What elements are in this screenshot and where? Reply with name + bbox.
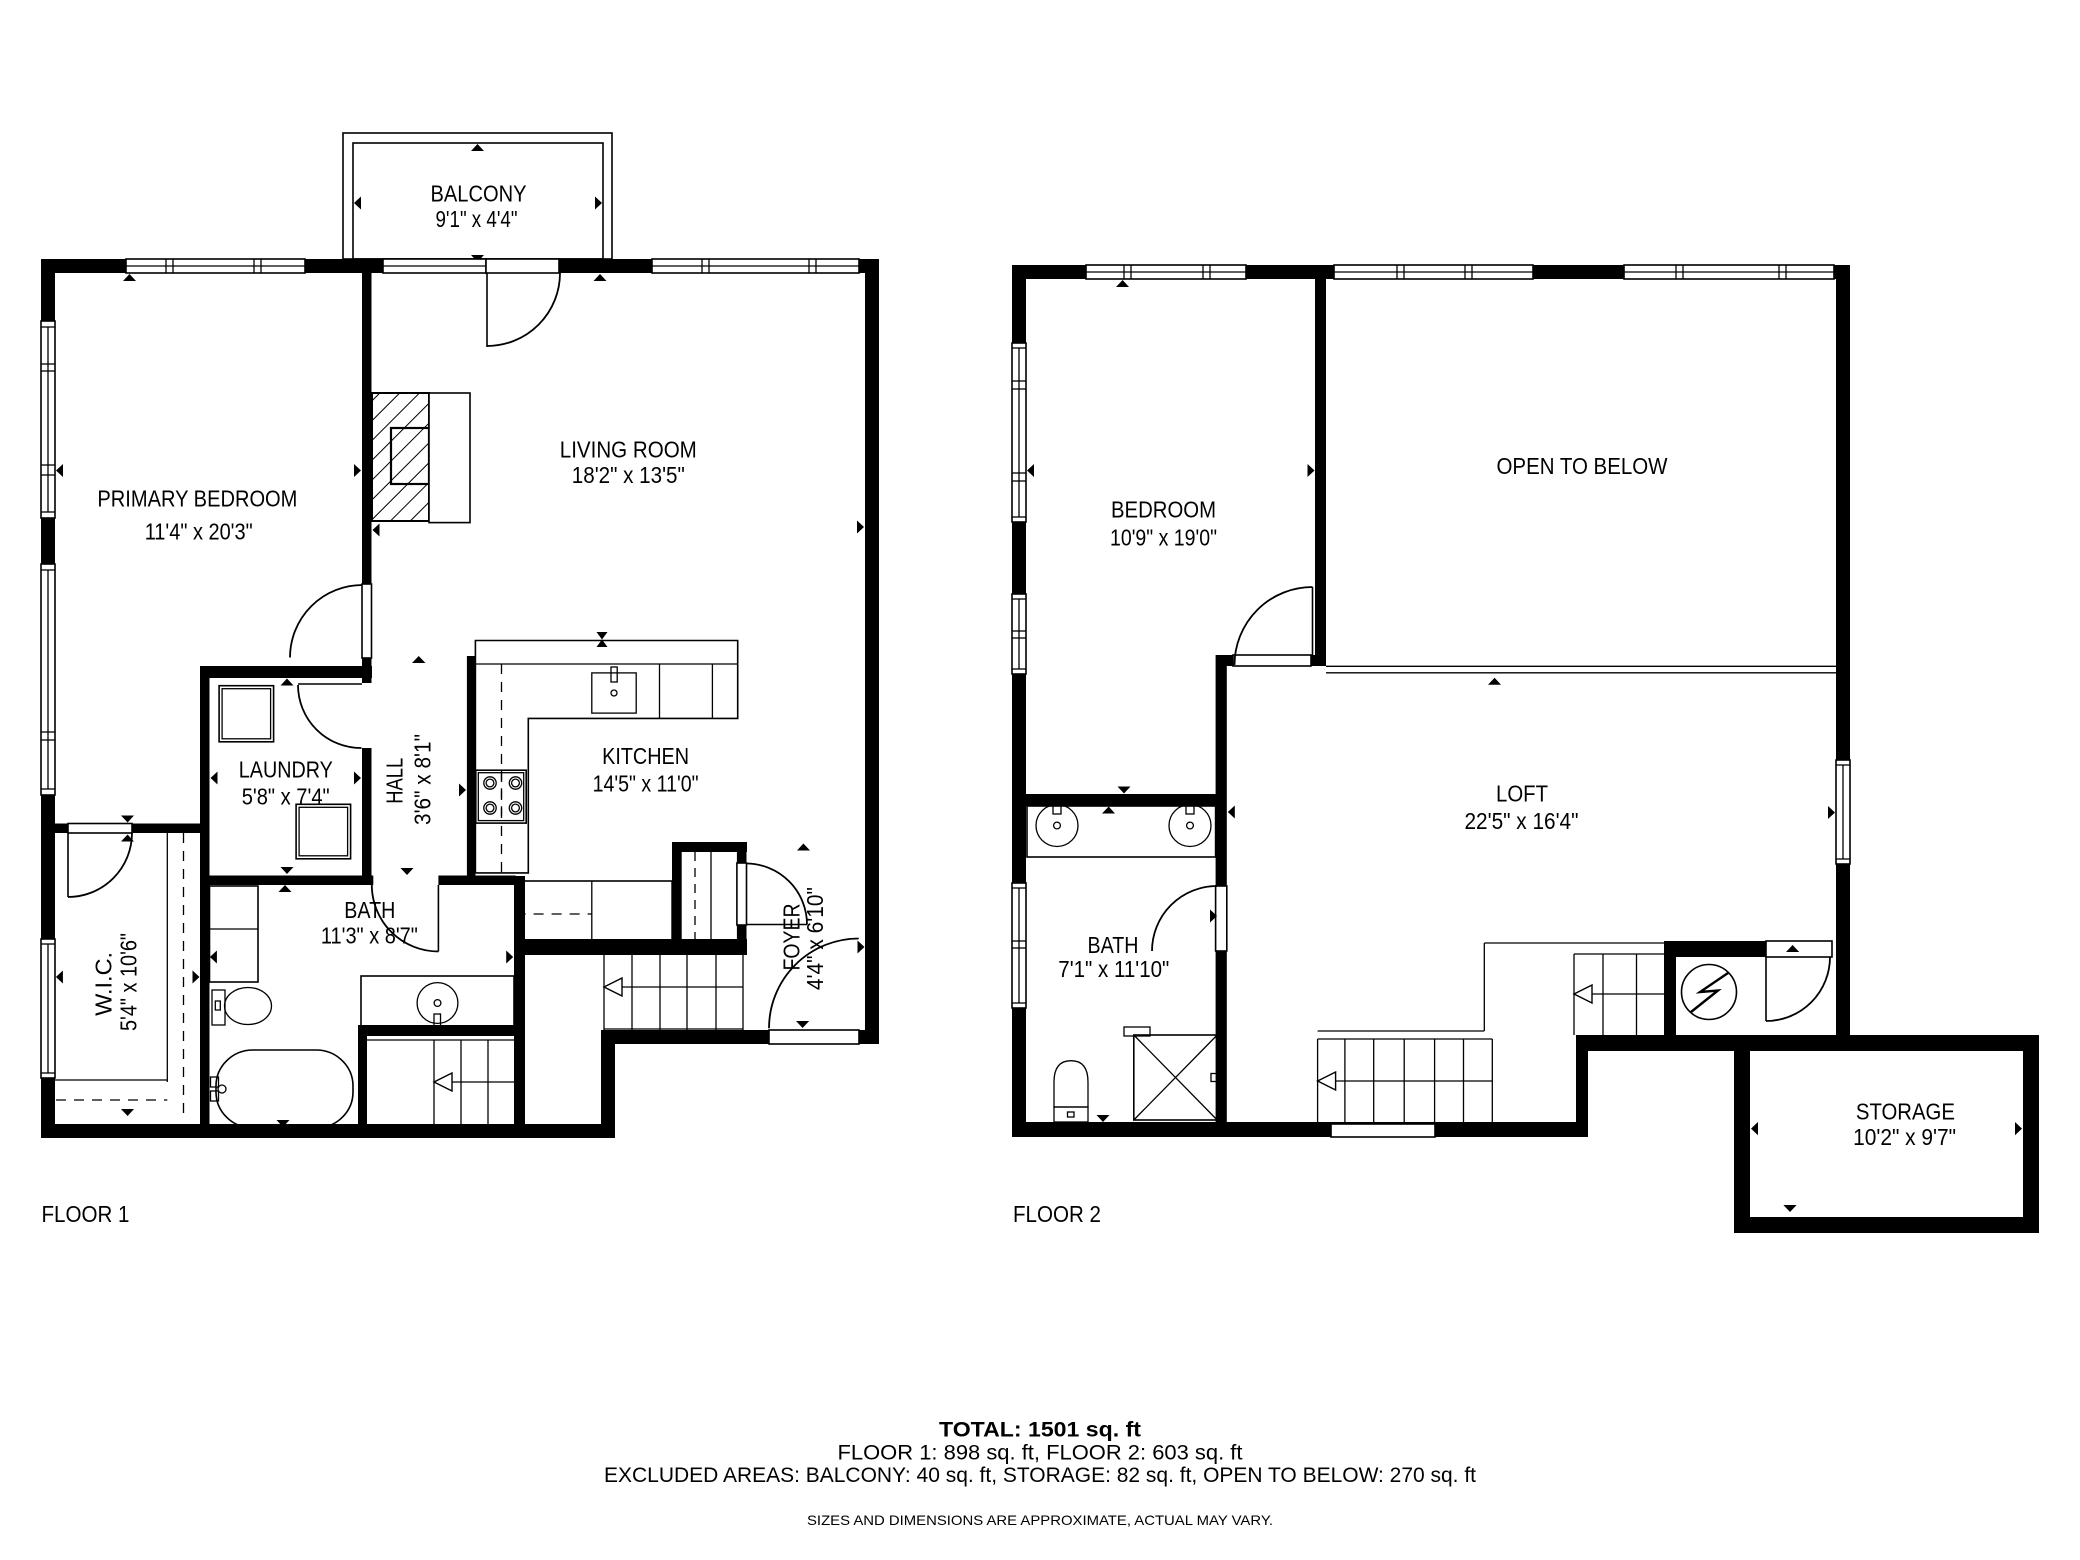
svg-text:FOYER: FOYER <box>778 904 804 971</box>
svg-text:TOTAL: 1501 sq. ft: TOTAL: 1501 sq. ft <box>939 1418 1141 1441</box>
svg-text:OPEN TO BELOW: OPEN TO BELOW <box>1497 453 1668 479</box>
svg-text:14'5" x 11'0": 14'5" x 11'0" <box>593 771 699 797</box>
svg-text:PRIMARY BEDROOM: PRIMARY BEDROOM <box>97 486 297 512</box>
svg-text:10'2" x 9'7": 10'2" x 9'7" <box>1853 1124 1956 1150</box>
svg-text:BATH: BATH <box>1088 932 1139 958</box>
svg-text:FLOOR 1: 898 sq. ft, FLOOR 2:: FLOOR 1: 898 sq. ft, FLOOR 2: 603 sq. ft <box>838 1442 1243 1465</box>
svg-text:STORAGE: STORAGE <box>1856 1099 1955 1125</box>
svg-text:10'9" x 19'0": 10'9" x 19'0" <box>1110 525 1217 551</box>
svg-text:BEDROOM: BEDROOM <box>1111 496 1216 522</box>
svg-text:5'4" x 10'6": 5'4" x 10'6" <box>116 933 142 1031</box>
svg-text:FLOOR 1: FLOOR 1 <box>42 1201 130 1227</box>
svg-text:18'2" x 13'5": 18'2" x 13'5" <box>572 462 685 488</box>
svg-text:LOFT: LOFT <box>1496 781 1548 807</box>
svg-text:SIZES AND DIMENSIONS ARE APPRO: SIZES AND DIMENSIONS ARE APPROXIMATE, AC… <box>807 1512 1273 1528</box>
svg-text:EXCLUDED AREAS: BALCONY: 40 sq: EXCLUDED AREAS: BALCONY: 40 sq. ft, STOR… <box>604 1464 1476 1487</box>
svg-text:3'6" x 8'1": 3'6" x 8'1" <box>410 734 436 825</box>
svg-text:HALL: HALL <box>381 758 407 804</box>
svg-text:7'1" x 11'10": 7'1" x 11'10" <box>1058 956 1169 982</box>
svg-text:22'5" x 16'4": 22'5" x 16'4" <box>1465 808 1579 834</box>
svg-text:11'3" x 8'7": 11'3" x 8'7" <box>321 922 418 948</box>
svg-text:W.I.C.: W.I.C. <box>91 952 117 1016</box>
svg-text:LIVING ROOM: LIVING ROOM <box>560 436 697 462</box>
svg-text:9'1" x 4'4": 9'1" x 4'4" <box>436 206 518 232</box>
svg-text:4'4" x 6'10": 4'4" x 6'10" <box>802 887 828 990</box>
svg-text:FLOOR 2: FLOOR 2 <box>1013 1201 1101 1227</box>
svg-text:11'4" x 20'3": 11'4" x 20'3" <box>145 518 253 544</box>
svg-text:LAUNDRY: LAUNDRY <box>239 757 333 783</box>
svg-text:KITCHEN: KITCHEN <box>602 743 689 769</box>
svg-text:BATH: BATH <box>344 897 395 923</box>
svg-text:BALCONY: BALCONY <box>431 181 527 207</box>
svg-text:5'8" x 7'4": 5'8" x 7'4" <box>242 784 330 810</box>
